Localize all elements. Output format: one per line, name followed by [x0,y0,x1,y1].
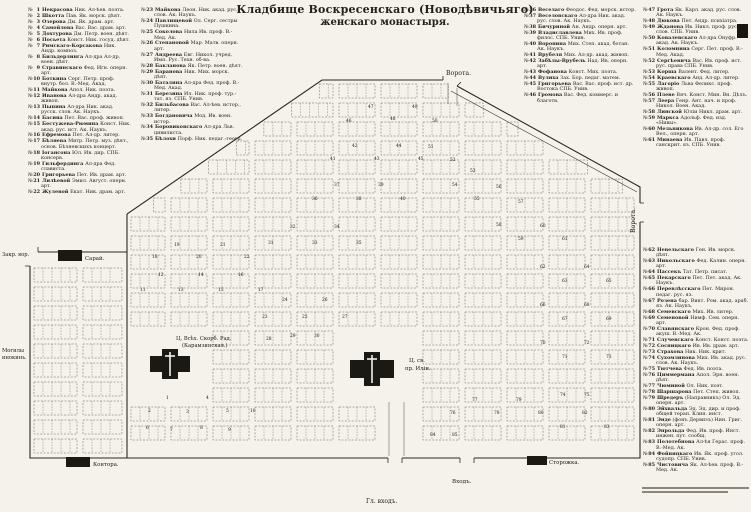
grave-list-entry: №30Баталина Ал-дра Фед. проф. В.-Мед. Ак… [141,81,243,91]
svg-text:81: 81 [560,425,566,430]
grave-number: №10 [28,77,40,82]
imprint-line [642,491,728,493]
svg-text:65: 65 [606,279,612,284]
grave-number: №51 [643,47,655,52]
grave-list-entry: №19Гильфердинга Ал-дра Фед. слависта. [28,162,131,172]
map-label-gate-top: Ворота. [446,70,471,77]
grave-list-entry: №49Жданова Ив. Никл. проф. рус. слов. СП… [643,25,749,35]
svg-text:40: 40 [400,197,406,202]
svg-text:47: 47 [368,105,374,110]
grave-list-entry: №52Сергѣевича Вас. Ив. проф. ист. рус. п… [643,59,749,69]
grave-number: №45 [524,82,536,87]
svg-text:54: 54 [452,183,458,188]
grave-list-entry: №12Иванова Ал-дра Андр. акад. живоп. [28,94,131,104]
svg-text:78: 78 [494,411,500,416]
svg-text:75: 75 [584,393,590,398]
svg-text:56: 56 [496,185,502,190]
svg-text:27: 27 [342,315,348,320]
grave-list-entry: №31Березина Ил. Ник. проф. тур.-тат. яз.… [141,92,243,102]
grave-list-column-1: №1Некрасова Ник. Ал-ѣев. поэта.№2Шкотта … [28,8,131,196]
svg-text:21: 21 [220,243,226,248]
grave-number: №35 [141,137,153,142]
grave-name: Жулевой [42,189,70,195]
grave-list-entry: №34Боровиковскаго Ал-дра Льв. цивилиста. [141,125,243,135]
grave-number: №57 [643,99,655,104]
grave-number: №59 [643,116,655,121]
grave-number: №70 [643,327,655,332]
grave-list-entry: №61Минаева Ив. Павл. проф. санскрит. яз.… [643,138,749,148]
svg-text:31: 31 [268,241,274,246]
svg-text:4: 4 [206,396,209,401]
map-label-church2-name-1: Ц. св. [409,358,425,364]
svg-text:71: 71 [562,355,568,360]
grave-list-entry: №76Циммермана Апол. Эрн. воен. дѣят. [643,373,749,383]
grave-list-column-2: №23Майкова Леон. Ник. акад. рус. слов. А… [141,8,243,143]
grave-list-entry: №33Богдановича Мод. Ив. воен. истор. [141,114,243,124]
grave-number: №74 [643,356,655,361]
grave-number: №9 [28,66,40,71]
map-label-entrance: Входъ. [452,479,472,485]
grave-list-entry: №8Бильдерлинга Ал-дра Ал-др. воен. дѣят. [28,55,131,65]
svg-text:68: 68 [584,303,590,308]
svg-text:44: 44 [396,144,402,149]
grave-list-entry: №29Баранова Ник. Мих. морск. дѣят. [141,70,243,80]
grave-number: №23 [141,8,153,13]
map-label-nun-graves-2: инокинь. [2,355,27,361]
grave-number: №42 [524,59,536,64]
grave-list-entry: №35Бѣлохи Порф. Ник. педаг.-геогр. [141,137,243,142]
grave-list-entry: №37Веселовскаго Ал-дра Ник. акад. рус. с… [524,14,637,24]
svg-text:66: 66 [540,303,546,308]
svg-text:8: 8 [200,426,203,431]
svg-text:79: 79 [516,398,522,403]
grave-number: №29 [141,70,153,75]
grave-number: №60 [643,127,655,132]
grave-list-entry: №59Маркса Адольф. Фед. изд. «Нивы». [643,116,749,126]
grave-number: №82 [643,429,655,434]
svg-text:16: 16 [238,273,244,278]
imprint-line [642,487,749,489]
grave-list-entry: №63Никольскаго Фед. Калин. оперн. арт. [643,259,749,269]
cemetery-plan-page: Кладбище Воскресенскаго (Новодѣвичьяго) … [0,0,751,512]
grave-list-entry: №17Бѣляева Митр. Петр. муз. дѣят., основ… [28,139,131,149]
svg-text:19: 19 [174,243,180,248]
grave-list-entry: №80Эйхвальда Эд. Эд. дир. и проф. общей … [643,407,749,417]
grave-number: №39 [524,31,536,36]
grave-list-entry: №27Андреева Евг. Никол. учред. Имп. Рус.… [141,53,243,63]
svg-text:72: 72 [584,341,590,346]
svg-text:52: 52 [450,158,456,163]
grave-list-entry: №39Владиславлева Мих. Ив. проф. филос. С… [524,31,637,41]
svg-text:33: 33 [312,241,318,246]
grave-list-column-4-upper: №47Грота Як. Карл. акад. рус. слов. Ак. … [643,8,749,149]
grave-list-entry: №81Энде (фонъ Дервизъ) Нин. Григ. оперн.… [643,418,749,428]
grave-list-entry: №62Невельскаго Ген. Ив. морск. дѣят. [643,248,749,258]
main-avenue [389,83,457,456]
svg-text:1: 1 [166,396,169,401]
map-label-shed: Сарай. [85,256,105,262]
svg-text:11: 11 [140,288,146,293]
svg-text:9: 9 [228,428,231,433]
svg-text:35: 35 [356,241,362,246]
grave-number: №37 [524,14,536,19]
svg-text:85: 85 [452,433,458,438]
grave-list-entry: №79Шредеръ (Направникъ) Ол. Эд. оперн. а… [643,396,749,406]
grave-info: Порф. Ник. педаг.-геогр. [178,136,242,142]
grave-list-entry: №51Коломнина Серг. Пет. проф. В.-Мед. Ак… [643,47,749,57]
svg-text:80: 80 [538,411,544,416]
svg-text:60: 60 [540,224,546,229]
svg-text:63: 63 [562,279,568,284]
svg-text:53: 53 [470,169,476,174]
grave-number: №30 [141,81,153,86]
svg-text:5: 5 [226,409,229,414]
svg-text:51: 51 [428,145,434,150]
grave-list-entry: №32Бильбасова Вас. Ал-ѣев. истор., литер… [141,103,243,113]
grave-list-column-3: №36Веселаго Феодос. Фед. морск. истор.№3… [524,8,637,105]
svg-text:82: 82 [582,411,588,416]
church-st-elijah [350,352,394,386]
svg-text:26: 26 [322,298,328,303]
grave-number: №67 [643,299,655,304]
svg-text:14: 14 [198,273,204,278]
grave-number: №31 [141,92,153,97]
grave-number: №27 [141,53,153,58]
grave-number: №25 [141,30,153,35]
svg-text:6: 6 [146,426,149,431]
grave-list-entry: №45Григорьева Вас. Вас. проф. ист. др. В… [524,82,637,92]
grave-number: №8 [28,55,40,60]
svg-text:45: 45 [418,157,424,162]
grave-number: №61 [643,138,655,143]
grave-number: №17 [28,139,40,144]
svg-text:36: 36 [312,197,318,202]
map-label-nun-graves-1: Могилы [2,348,24,354]
grave-number: №69 [643,316,655,321]
grave-number: №21 [28,179,40,184]
svg-text:77: 77 [472,398,478,403]
grave-list-entry: №74Сухомлинова Мих. Ив. акад. рус. слов.… [643,356,749,366]
grave-number: №19 [28,162,40,167]
scan-artifact [737,24,748,38]
grave-number: №76 [643,373,655,378]
grave-number: №47 [643,8,655,13]
svg-text:37: 37 [334,183,340,188]
grave-list-entry: №10Боткина Серг. Петр. проф. внутр. бол.… [28,77,131,87]
grave-list-entry: №23Майкова Леон. Ник. акад. рус. слов. А… [141,8,243,18]
grave-number: №32 [141,103,153,108]
grave-list-entry: №84Фойницкаго Ив. Як. проф. угол. судопр… [643,452,749,462]
grave-number: №40 [524,42,536,47]
grave-number: №26 [141,41,153,46]
svg-text:76: 76 [450,411,456,416]
svg-text:55: 55 [474,197,480,202]
svg-text:32: 32 [290,225,296,230]
svg-text:18: 18 [152,255,158,260]
svg-text:46: 46 [346,119,352,124]
svg-text:64: 64 [584,265,590,270]
grave-list-entry: №7Римскаго-Корсакова Ник. Андр. композ. [28,44,131,54]
svg-text:15: 15 [218,288,224,293]
grave-number: №81 [643,418,655,423]
grave-number: №85 [643,463,655,468]
grave-list-entry: №83Полотебнова Ал-ѣя Герас. проф. В.-Мед… [643,440,749,450]
grave-list-entry: №69Семеновой Нимф. Сем. оперн. арт. [643,316,749,326]
grave-list-entry: №26Степановой Мар. Матв. оперн. арт. [141,41,243,51]
svg-text:3: 3 [186,410,189,415]
grave-list-entry: №67Розена бар. Викт. Ром. акад. араб. яз… [643,299,749,309]
grave-list-entry: №66Перевлѣсскаго Пет. Мирон. педаг. рус.… [643,287,749,297]
svg-text:43: 43 [374,157,380,162]
svg-text:59: 59 [518,237,524,242]
svg-text:58: 58 [496,223,502,228]
svg-text:83: 83 [604,425,610,430]
grave-number: №55 [643,82,655,87]
grave-number: №65 [643,276,655,281]
grave-number: №66 [643,287,655,292]
grave-list-column-4-lower: №62Невельскаго Ген. Ив. морск. дѣят.№63Н… [643,248,749,474]
grave-number: №46 [524,93,536,98]
grave-info: Екат. Ник. драм. арт. [70,189,125,195]
grave-number: №22 [28,190,40,195]
grave-number: №84 [643,452,655,457]
imprint [642,487,749,495]
svg-text:62: 62 [540,265,546,270]
svg-text:34: 34 [334,225,340,230]
svg-text:17: 17 [258,288,264,293]
grave-number: №13 [28,105,40,110]
map-label-main-entrance: Гл. входъ. [366,498,397,505]
svg-text:42: 42 [352,144,358,149]
grave-number: №80 [643,407,655,412]
svg-text:12: 12 [158,273,164,278]
svg-text:69: 69 [606,317,612,322]
grave-list-entry: №18Іогансона Юл. Ив. дир. СПБ. консерв. [28,151,131,161]
grave-number: №52 [643,59,655,64]
svg-text:13: 13 [178,288,184,293]
svg-text:10: 10 [250,409,256,414]
grave-name: Бѣлохи [155,136,178,142]
svg-text:84: 84 [430,433,436,438]
grave-number: №12 [28,94,40,99]
grave-number: №34 [141,125,153,130]
grave-list-entry: №47Грота Як. Карл. акад. рус. слов. Ак. … [643,8,749,18]
svg-text:38: 38 [356,197,362,202]
map-label-church2-name-2: пр. Иліи. [405,366,431,372]
svg-text:7: 7 [170,428,173,433]
svg-text:73: 73 [606,355,612,360]
grave-number: №33 [141,114,153,119]
service-buildings [58,250,547,467]
svg-text:48: 48 [390,117,396,122]
grave-number: №15 [28,122,40,127]
map-label-church1-name: Ц. Всѣх. Скорб. Рад. [176,335,232,342]
svg-text:30: 30 [314,334,320,339]
grave-list-entry: №60Мельникова Ив. Ал-др. сол. Его Вел., … [643,127,749,137]
svg-text:24: 24 [282,298,288,303]
svg-text:23: 23 [262,315,268,320]
grave-list-entry: №22Жулевой Екат. Ник. драм. арт. [28,190,131,195]
svg-text:49: 49 [412,105,418,110]
svg-text:28: 28 [266,337,272,342]
svg-text:74: 74 [560,393,566,398]
grave-number: №49 [643,25,655,30]
map-label-gate-right: Ворота. [630,208,637,233]
svg-text:61: 61 [562,237,568,242]
svg-text:41: 41 [330,157,336,162]
grave-list-entry: №21Лилѣевой Эмил. Август. оперн. арт. [28,179,131,189]
office-building [66,457,90,467]
grave-list-entry: №70Славянскаго Крон. Фед. проф. акуш. В.… [643,327,749,337]
svg-text:50: 50 [432,119,438,124]
map-label-church1-alt: (Карамзинская.) [182,342,228,349]
grave-number: №83 [643,440,655,445]
map-label-office: Контора. [93,462,119,468]
grave-number: №7 [28,44,40,49]
shed-building [58,250,82,261]
grave-number: №63 [643,259,655,264]
map-label-closed-gate: Закр. вор. [2,252,30,258]
grave-list-entry: №85Чистовича Як. Ал-ѣев. проф. В.-Мед. А… [643,463,749,473]
watchhouse-building [527,456,547,465]
grave-list-entry: №46Громова Вас. Фед. коммерс. и благотв. [524,93,637,103]
svg-text:29: 29 [290,334,296,339]
map-label-watchhouse: Сторожка. [549,460,580,466]
grave-list-entry: №9Стравинскаго Фед. Игн. оперн. арт. [28,66,131,76]
grave-number: №24 [141,19,153,24]
svg-text:2: 2 [148,409,151,414]
grave-number: №18 [28,151,40,156]
grave-list-entry: №55Лагоріо Льва Феликс. проф. живоп. [643,82,749,92]
svg-text:25: 25 [302,315,308,320]
grave-number: №50 [643,36,655,41]
church-all-sorrows-karamzin [150,349,190,379]
svg-text:22: 22 [244,255,250,260]
svg-text:39: 39 [378,183,384,188]
svg-text:70: 70 [540,341,546,346]
svg-text:57: 57 [518,200,524,205]
svg-text:67: 67 [562,317,568,322]
grave-list-entry: №57Леера Генр. Ант. нач. и проф. Никол. … [643,99,749,109]
grave-number: №79 [643,396,655,401]
svg-text:20: 20 [196,255,202,260]
grave-number: №62 [643,248,655,253]
